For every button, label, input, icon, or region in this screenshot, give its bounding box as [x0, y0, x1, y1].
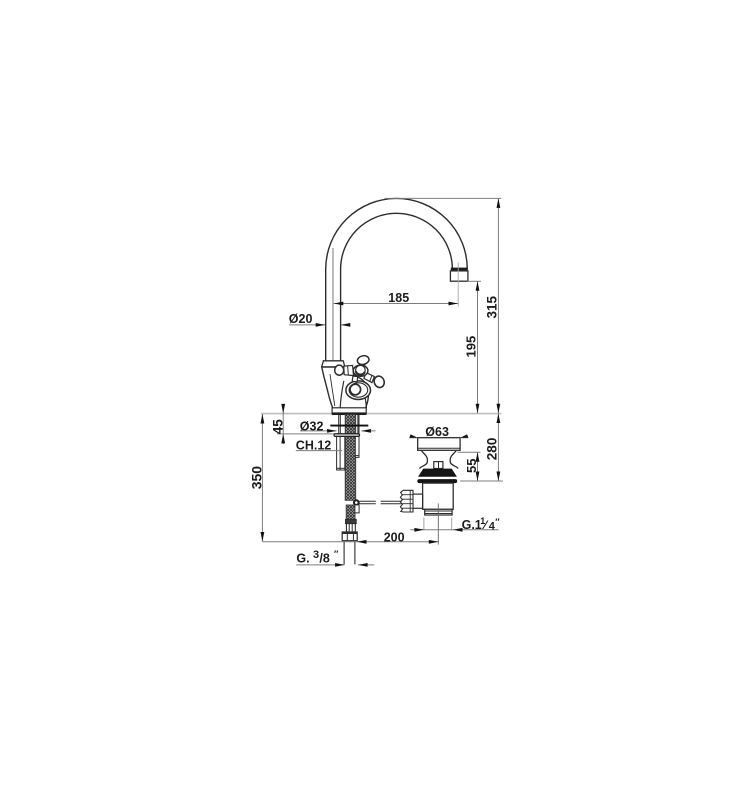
svg-text:G.: G.: [296, 551, 309, 565]
svg-text:195: 195: [464, 336, 479, 358]
svg-text:Ø63: Ø63: [425, 425, 449, 439]
svg-text:315: 315: [485, 295, 500, 318]
svg-text:55: 55: [464, 459, 479, 473]
svg-text:280: 280: [484, 438, 499, 461]
svg-text:Ø20: Ø20: [289, 312, 313, 326]
svg-text:″: ″: [334, 549, 339, 559]
svg-text:185: 185: [388, 291, 409, 305]
svg-text:45: 45: [271, 419, 286, 435]
svg-text:3: 3: [313, 549, 319, 561]
svg-text:″: ″: [495, 517, 500, 527]
svg-text:200: 200: [384, 530, 405, 544]
svg-text:/8: /8: [319, 551, 329, 565]
svg-text:350: 350: [248, 466, 264, 490]
svg-text:G.1: G.1: [462, 518, 482, 532]
